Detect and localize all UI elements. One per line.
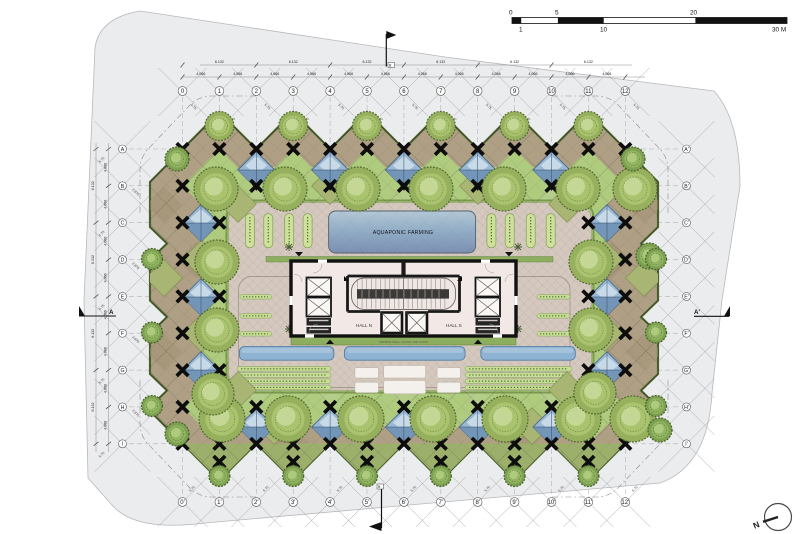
svg-text:4.066: 4.066: [602, 72, 611, 76]
svg-text:11': 11': [585, 500, 592, 506]
svg-text:4.066: 4.066: [196, 72, 205, 76]
svg-text:4.066: 4.066: [104, 347, 108, 356]
svg-text:4.066: 4.066: [270, 72, 279, 76]
svg-text:G': G': [684, 368, 689, 374]
svg-text:4.066: 4.066: [529, 72, 538, 76]
svg-text:5': 5': [365, 500, 369, 506]
svg-text:4.066: 4.066: [381, 72, 390, 76]
svg-text:10: 10: [548, 89, 555, 95]
svg-text:0': 0': [180, 500, 184, 506]
svg-text:4': 4': [328, 500, 332, 506]
svg-text:HALL N: HALL N: [356, 323, 372, 328]
svg-text:11: 11: [585, 89, 592, 95]
svg-text:12: 12: [622, 89, 629, 95]
svg-text:4.066: 4.066: [104, 310, 108, 319]
svg-text:6.132: 6.132: [363, 60, 372, 64]
svg-text:C': C': [684, 221, 689, 227]
svg-text:MIRROR WALL ALONG THE CORR: MIRROR WALL ALONG THE CORR: [379, 340, 428, 344]
svg-text:AQUAPONIC FARMING: AQUAPONIC FARMING: [373, 230, 433, 236]
svg-text:A: A: [121, 147, 125, 153]
svg-text:8': 8': [475, 500, 479, 506]
svg-text:G: G: [120, 368, 124, 374]
svg-text:20: 20: [690, 10, 698, 17]
svg-text:2': 2': [254, 500, 258, 506]
svg-text:E: E: [121, 294, 125, 300]
svg-text:B': B': [684, 184, 688, 190]
svg-text:4.066: 4.066: [566, 72, 575, 76]
svg-text:9': 9': [512, 500, 516, 506]
svg-text:4.066: 4.066: [418, 72, 427, 76]
svg-text:E': E': [684, 294, 688, 300]
svg-text:A': A': [684, 147, 688, 153]
svg-text:4.066: 4.066: [104, 237, 108, 246]
svg-text:4.066: 4.066: [233, 72, 242, 76]
svg-text:6.132: 6.132: [91, 181, 95, 190]
svg-text:4.066: 4.066: [104, 163, 108, 172]
svg-text:12': 12': [621, 500, 629, 506]
svg-text:F': F': [684, 331, 688, 337]
svg-text:A: A: [109, 309, 114, 316]
svg-text:6.132: 6.132: [215, 60, 224, 64]
svg-text:1: 1: [519, 27, 523, 34]
svg-text:4.066: 4.066: [307, 72, 316, 76]
svg-text:F: F: [121, 331, 124, 337]
svg-text:D: D: [121, 257, 125, 263]
svg-text:10: 10: [600, 27, 608, 34]
svg-text:10': 10': [548, 500, 556, 506]
svg-text:6.132: 6.132: [584, 60, 593, 64]
svg-text:C: C: [121, 221, 125, 227]
svg-text:I: I: [122, 442, 123, 448]
svg-text:5.75: 5.75: [631, 485, 639, 493]
svg-text:4.066: 4.066: [104, 273, 108, 282]
svg-text:6.132: 6.132: [91, 403, 95, 412]
svg-text:5: 5: [555, 10, 559, 17]
svg-text:6.132: 6.132: [289, 60, 298, 64]
svg-text:6.132: 6.132: [436, 60, 445, 64]
svg-text:30 M: 30 M: [772, 27, 786, 34]
svg-text:4.066: 4.066: [344, 72, 353, 76]
svg-text:4.066: 4.066: [104, 421, 108, 430]
svg-text:6.132: 6.132: [91, 255, 95, 264]
svg-text:4.066: 4.066: [455, 72, 464, 76]
svg-text:A': A': [694, 309, 700, 316]
svg-text:I': I': [685, 442, 687, 448]
svg-text:0: 0: [509, 10, 513, 17]
svg-text:4.066: 4.066: [492, 72, 501, 76]
svg-text:1': 1': [217, 500, 221, 506]
svg-text:B: B: [121, 184, 125, 190]
svg-text:N: N: [752, 519, 761, 531]
svg-text:HALL S: HALL S: [446, 323, 462, 328]
svg-text:3': 3': [291, 500, 295, 506]
svg-text:4.066: 4.066: [104, 200, 108, 209]
svg-text:6.132: 6.132: [91, 329, 95, 338]
svg-text:H: H: [121, 405, 125, 411]
svg-text:6.132: 6.132: [510, 60, 519, 64]
svg-text:D': D': [684, 257, 689, 263]
svg-text:4.066: 4.066: [104, 384, 108, 393]
svg-text:H': H': [684, 405, 689, 411]
svg-text:7': 7': [439, 500, 443, 506]
svg-text:6': 6': [402, 500, 406, 506]
